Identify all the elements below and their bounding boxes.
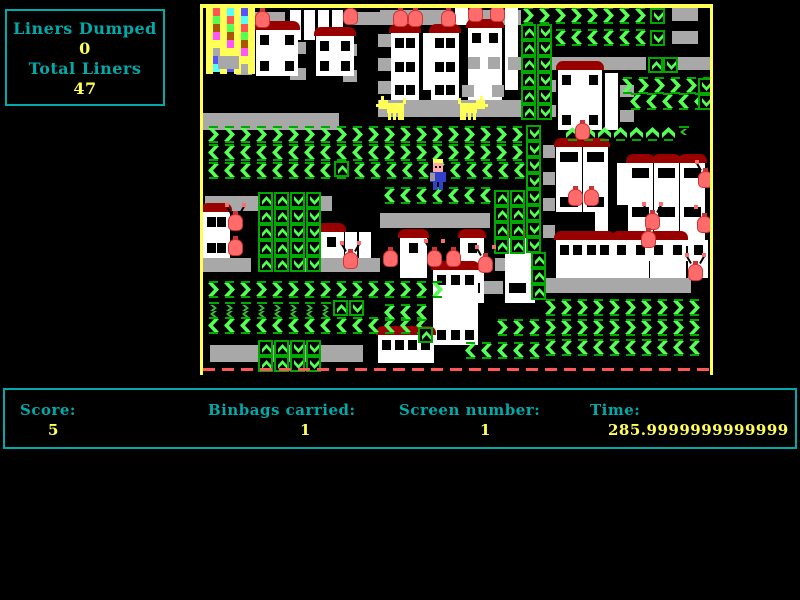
belt-dash (337, 296, 346, 298)
binbag (255, 8, 270, 28)
belt-dash (620, 8, 629, 9)
belt-dash (225, 317, 234, 319)
platform (378, 58, 391, 71)
conveyor-cell (698, 94, 710, 110)
belt-dash (588, 22, 597, 24)
belt-dash (524, 8, 533, 9)
belt-dash (499, 177, 508, 179)
binbags-label: Binbags carried: (208, 401, 356, 419)
house-window (341, 61, 350, 71)
conveyor-cell (258, 224, 273, 240)
belt-dash (273, 159, 282, 161)
belt-dash (658, 319, 667, 321)
conveyor-cell (537, 88, 552, 104)
dump-liner (227, 32, 234, 40)
belt-dash (513, 126, 522, 128)
chevron-right-icon (384, 146, 395, 159)
chevron-down-icon (294, 344, 303, 353)
chevron-up-icon (278, 344, 287, 353)
chevron-left-icon (288, 319, 299, 332)
house-roof (652, 154, 681, 163)
belt-dash (594, 339, 603, 341)
chevron-left-icon (498, 164, 509, 177)
conveyor-cell (537, 56, 552, 72)
belt-dash (305, 126, 314, 128)
chevron-up-icon (525, 60, 534, 69)
dog-ear (381, 96, 384, 101)
conveyor-cell (274, 340, 289, 356)
chevron-up-icon (535, 288, 544, 297)
belt-dash (225, 302, 235, 304)
belt-dash (417, 187, 426, 189)
belt-dash (337, 141, 346, 143)
house-roof (458, 229, 486, 238)
house-window (446, 38, 455, 48)
chevron-up-icon (525, 28, 534, 37)
chevron-right-icon (304, 283, 315, 296)
belt-dash (289, 332, 298, 334)
house-window (451, 330, 460, 340)
binbag-tie-tip (340, 241, 344, 245)
conveyor-cell (306, 224, 321, 240)
house-window (589, 75, 598, 85)
conveyor-cell (290, 208, 305, 224)
dog-body (387, 103, 404, 113)
belt-dash (449, 202, 458, 204)
binbag-tie (709, 163, 710, 171)
belt-dash (209, 302, 219, 304)
chevron-right-icon (619, 9, 630, 22)
belt-dash (337, 317, 346, 319)
binbag-body (641, 231, 656, 248)
chevron-left-icon (673, 341, 684, 354)
dog-leg (393, 113, 396, 120)
house-window (600, 245, 609, 255)
conveyor-cell (521, 104, 536, 120)
chevron-right-icon (555, 9, 566, 22)
conveyor-cell (510, 206, 525, 222)
conveyor-cell (537, 40, 552, 56)
belt-dash (305, 281, 314, 283)
binbag (697, 213, 710, 233)
player-eye (435, 166, 437, 168)
binbag (393, 8, 408, 27)
chevron-up-icon (525, 108, 534, 117)
belt-dash (273, 332, 282, 334)
chevron-left-icon (561, 341, 572, 354)
conveyor-cell (494, 222, 509, 238)
chevron-up-icon (262, 244, 271, 253)
belt-dash (433, 202, 442, 204)
dump-liner (227, 8, 234, 16)
conveyor-cell (290, 224, 305, 240)
belt-dash (679, 108, 688, 110)
chevron-up-icon (337, 304, 346, 313)
binbag-body (228, 214, 243, 231)
belt-dash (636, 22, 645, 24)
belt-dash (466, 342, 475, 344)
chevron-right-icon (670, 79, 681, 92)
playfield[interactable] (200, 4, 713, 375)
chevron-left-icon (256, 319, 267, 332)
chevron-right-icon (240, 128, 251, 141)
chevron-right-icon (561, 301, 572, 314)
belt-dash (289, 144, 298, 146)
chevron-up-icon (262, 212, 271, 221)
binbag (408, 8, 423, 27)
house-roof (554, 231, 615, 240)
belt-dash (385, 319, 394, 321)
platform (672, 31, 698, 44)
belt-dash (241, 162, 250, 164)
belt-dash (647, 108, 656, 110)
dump-liner (227, 40, 234, 48)
belt-dash (546, 314, 555, 316)
chevron-right-icon (368, 283, 379, 296)
binbag (698, 168, 710, 188)
belt-dash (257, 177, 266, 179)
belt-dash (690, 334, 699, 336)
belt-dash (417, 141, 426, 143)
binbag-body (584, 189, 599, 206)
belt-dash (401, 281, 410, 283)
house-window (285, 61, 294, 71)
conveyor-cell (650, 30, 665, 46)
chevron-right-icon (673, 301, 684, 314)
house-window (489, 33, 498, 43)
chevron-left-icon (288, 146, 299, 159)
belt-dash (385, 202, 394, 204)
belt-dash (610, 314, 619, 316)
house-window (327, 237, 336, 247)
chevron-left-icon (304, 164, 315, 177)
belt-dash (209, 162, 218, 164)
belt-dash (483, 162, 492, 164)
belt-dash (604, 29, 613, 31)
belt-dash (604, 8, 613, 9)
chevron-down-icon (310, 196, 319, 205)
binbag-tie-tip (492, 245, 496, 249)
conveyor-cell (521, 88, 536, 104)
chevron-right-icon (448, 128, 459, 141)
belt-dash (369, 332, 378, 334)
belt-dash (401, 141, 410, 143)
chevron-up-icon (262, 228, 271, 237)
player (430, 159, 446, 190)
conveyor-cell (510, 238, 525, 254)
belt-dash (626, 299, 635, 301)
chevron-right-icon (587, 9, 598, 22)
conveyor-cell (526, 221, 541, 237)
belt-dash (417, 319, 426, 321)
chevron-left-icon (368, 146, 379, 159)
chevron-right-icon (322, 305, 329, 311)
belt-dash (632, 139, 641, 141)
belt-dash (273, 126, 282, 128)
binbag (641, 228, 656, 248)
chevron-left-icon (689, 341, 700, 354)
liners-dumped-label: Liners Dumped (7, 19, 163, 39)
conveyor-cell (274, 192, 289, 208)
platform (678, 57, 710, 70)
chevron-right-icon (258, 305, 265, 311)
chevron-right-icon (352, 128, 363, 141)
chevron-down-icon (294, 196, 303, 205)
score-value: 5 (48, 421, 59, 439)
chevron-right-icon (593, 321, 604, 334)
conveyor-cell (258, 340, 273, 356)
chevron-left-icon (480, 189, 491, 202)
house-window (395, 62, 404, 72)
belt-dash (481, 144, 490, 146)
binbag-body (575, 123, 590, 140)
belt-dash (209, 332, 218, 334)
chevron-left-icon (587, 31, 598, 44)
belt-dash (321, 317, 330, 319)
conveyor-cell (306, 240, 321, 256)
chevron-down-icon (530, 225, 539, 234)
belt-dash (467, 177, 476, 179)
belt-dash (257, 159, 266, 161)
chevron-left-icon (625, 341, 636, 354)
belt-dash (465, 187, 474, 189)
dog-head (476, 100, 485, 109)
chevron-left-icon (481, 344, 492, 357)
belt-dash (514, 319, 523, 321)
conveyor-cell (650, 8, 665, 24)
chevron-right-icon (256, 283, 267, 296)
belt-dash (481, 141, 490, 143)
house-window (673, 245, 682, 255)
chevron-left-icon (370, 164, 381, 177)
chevron-down-icon (541, 28, 550, 37)
belt-dash (658, 314, 667, 316)
conveyor-cell (306, 256, 321, 272)
belt-dash (610, 339, 619, 341)
belt-dash (631, 108, 640, 110)
belt-dash (578, 354, 587, 356)
conveyor-row (628, 94, 708, 110)
chevron-left-icon (635, 31, 646, 44)
binbag (584, 186, 599, 206)
chevron-left-icon (514, 164, 525, 177)
belt-dash (225, 281, 234, 283)
chevron-right-icon (400, 283, 411, 296)
belt-dash (321, 126, 330, 128)
belt-dash (225, 144, 234, 146)
belt-dash (594, 299, 603, 301)
chevron-down-icon (541, 44, 550, 53)
chevron-left-icon (208, 164, 219, 177)
belt-dash (481, 159, 490, 161)
conveyor-cell (494, 190, 509, 206)
belt-dash (497, 144, 506, 146)
belt-dash (241, 317, 250, 319)
conveyor-cell (306, 340, 321, 356)
belt-dash (658, 354, 667, 356)
belt-dash (433, 141, 442, 143)
dump-pillar (206, 8, 213, 74)
belt-dash (483, 177, 492, 179)
house-window (465, 275, 474, 285)
belt-dash (321, 141, 330, 143)
conveyor-cell (537, 104, 552, 120)
white-block (359, 232, 371, 258)
chevron-left-icon (368, 319, 379, 332)
belt-dash (321, 332, 330, 334)
chevron-left-icon (555, 31, 566, 44)
chevron-left-icon (662, 95, 673, 108)
house-window (382, 340, 391, 350)
house-window (409, 243, 418, 253)
belt-dash (546, 339, 555, 341)
belt-dash (371, 162, 380, 164)
chevron-left-icon (322, 311, 329, 317)
binbag-body (393, 10, 408, 27)
belt-dash (353, 296, 362, 298)
binbag (441, 8, 456, 27)
chevron-up-icon (514, 210, 523, 219)
conveyor-row (382, 305, 430, 321)
chevron-right-icon (496, 146, 507, 159)
platform (543, 278, 691, 293)
belt-dash (556, 29, 565, 31)
belt-dash (515, 177, 524, 179)
belt-dash (514, 334, 523, 336)
belt-dash (321, 302, 331, 304)
belt-dash (385, 141, 394, 143)
belt-dash (209, 144, 218, 146)
chevron-right-icon (561, 321, 572, 334)
conveyor-cell (537, 72, 552, 88)
chevron-up-icon (514, 242, 523, 251)
belt-dash (610, 299, 619, 301)
chevron-down-icon (310, 244, 319, 253)
belt-dash (209, 141, 218, 143)
house (400, 229, 427, 278)
chevron-right-icon (464, 146, 475, 159)
belt-dash (289, 317, 298, 319)
belt-dash (556, 22, 565, 24)
chevron-right-icon (512, 128, 523, 141)
dog (458, 96, 488, 120)
house-window (260, 61, 269, 71)
belt-dash (385, 296, 394, 298)
chevron-right-icon (657, 321, 668, 334)
playfield-canvas (203, 8, 710, 375)
belt-dash (546, 319, 555, 321)
chevron-right-icon (320, 128, 331, 141)
chevron-up-icon (630, 127, 643, 138)
belt-dash (273, 162, 282, 164)
binbag-body (446, 250, 461, 267)
chevron-right-icon (272, 128, 283, 141)
belt-dash (417, 304, 426, 306)
belt-dash (417, 202, 426, 204)
belt-dash (355, 177, 364, 179)
belt-dash (664, 139, 673, 141)
conveyor-cell (306, 208, 321, 224)
dump-liner (241, 64, 248, 72)
chevron-left-icon (577, 341, 588, 354)
belt-dash (257, 317, 266, 319)
chevron-right-icon (256, 128, 267, 141)
belt-dash (433, 126, 442, 128)
dog-leg (473, 113, 476, 120)
chevron-left-icon (497, 344, 508, 357)
belt-dash (289, 126, 298, 128)
belt-dash (369, 126, 378, 128)
chevron-up-icon (278, 260, 287, 269)
belt-dash (655, 77, 664, 79)
chevron-left-icon (272, 164, 283, 177)
belt-dash (465, 159, 474, 161)
platform (380, 213, 490, 228)
chevron-down-icon (294, 228, 303, 237)
chevron-left-icon (336, 146, 347, 159)
chevron-left-icon (416, 306, 427, 319)
belt-dash (674, 339, 683, 341)
belt-dash (546, 299, 555, 301)
binbag-body (688, 264, 703, 281)
dog-tail (458, 98, 461, 104)
chevron-right-icon (577, 321, 588, 334)
belt-dash (546, 334, 555, 336)
belt-dash (687, 77, 696, 79)
belt-dash (562, 319, 571, 321)
dump-liner (241, 40, 248, 48)
binbag-body (698, 171, 710, 188)
house-window (320, 41, 329, 51)
belt-dash (658, 299, 667, 301)
binbag-tie-tip (695, 160, 699, 164)
belt-dash (321, 296, 330, 298)
belt-dash (225, 159, 234, 161)
chevron-right-icon (240, 283, 251, 296)
house-window (260, 35, 269, 45)
chevron-right-icon (497, 321, 508, 334)
belt-dash (257, 126, 266, 128)
chevron-right-icon (320, 283, 331, 296)
belt-dash (594, 314, 603, 316)
belt-dash (225, 296, 234, 298)
belt-dash (679, 93, 688, 95)
conveyor-cell (274, 256, 289, 272)
house-window (666, 168, 675, 178)
belt-dash (305, 332, 314, 334)
chevron-right-icon (622, 79, 633, 92)
chevron-right-icon (226, 305, 233, 311)
belt-dash (515, 162, 524, 164)
conveyor-row (463, 343, 543, 359)
house-roof (398, 229, 429, 238)
dump-liner (213, 8, 220, 16)
belt-dash (658, 339, 667, 341)
platform (672, 8, 698, 21)
belt-dash (481, 202, 490, 204)
house-window (446, 62, 455, 72)
belt-dash (449, 126, 458, 128)
conveyor-cell (663, 57, 678, 73)
chevron-right-icon (306, 305, 313, 311)
house-window (435, 38, 444, 48)
dump-liner (241, 8, 248, 16)
belt-dash (556, 8, 565, 9)
house-window (573, 245, 582, 255)
conveyor-cell (531, 284, 546, 300)
belt-dash (648, 139, 657, 141)
dump (206, 8, 255, 74)
